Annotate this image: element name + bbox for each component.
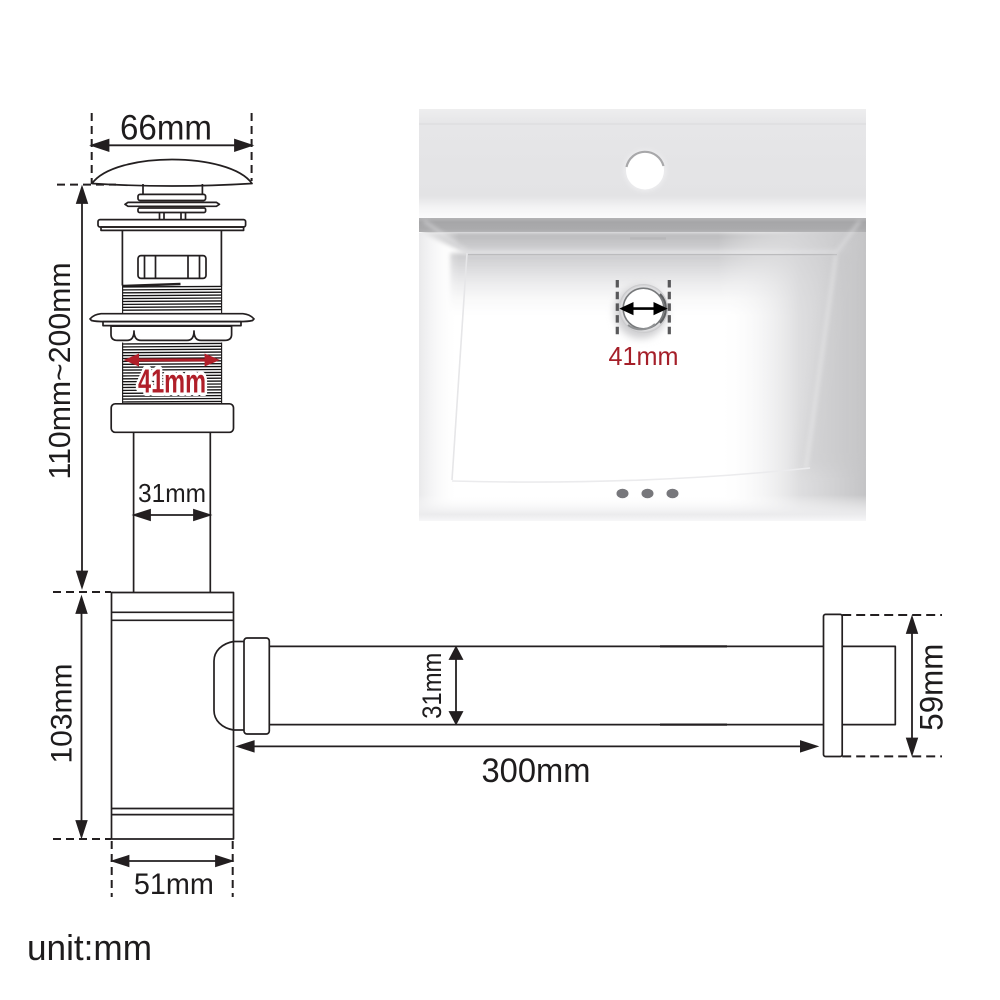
svg-text:31mm: 31mm xyxy=(138,478,206,508)
svg-text:59mm: 59mm xyxy=(914,644,950,731)
svg-text:103mm: 103mm xyxy=(46,663,79,763)
svg-text:41mm: 41mm xyxy=(609,341,679,371)
svg-text:41mm: 41mm xyxy=(138,363,206,400)
svg-text:300mm: 300mm xyxy=(482,752,591,790)
svg-text:51mm: 51mm xyxy=(134,868,214,901)
svg-text:110mm~200mm: 110mm~200mm xyxy=(42,263,77,480)
svg-text:66mm: 66mm xyxy=(120,107,212,147)
svg-text:unit:mm: unit:mm xyxy=(27,927,152,968)
svg-text:31mm: 31mm xyxy=(417,653,447,719)
